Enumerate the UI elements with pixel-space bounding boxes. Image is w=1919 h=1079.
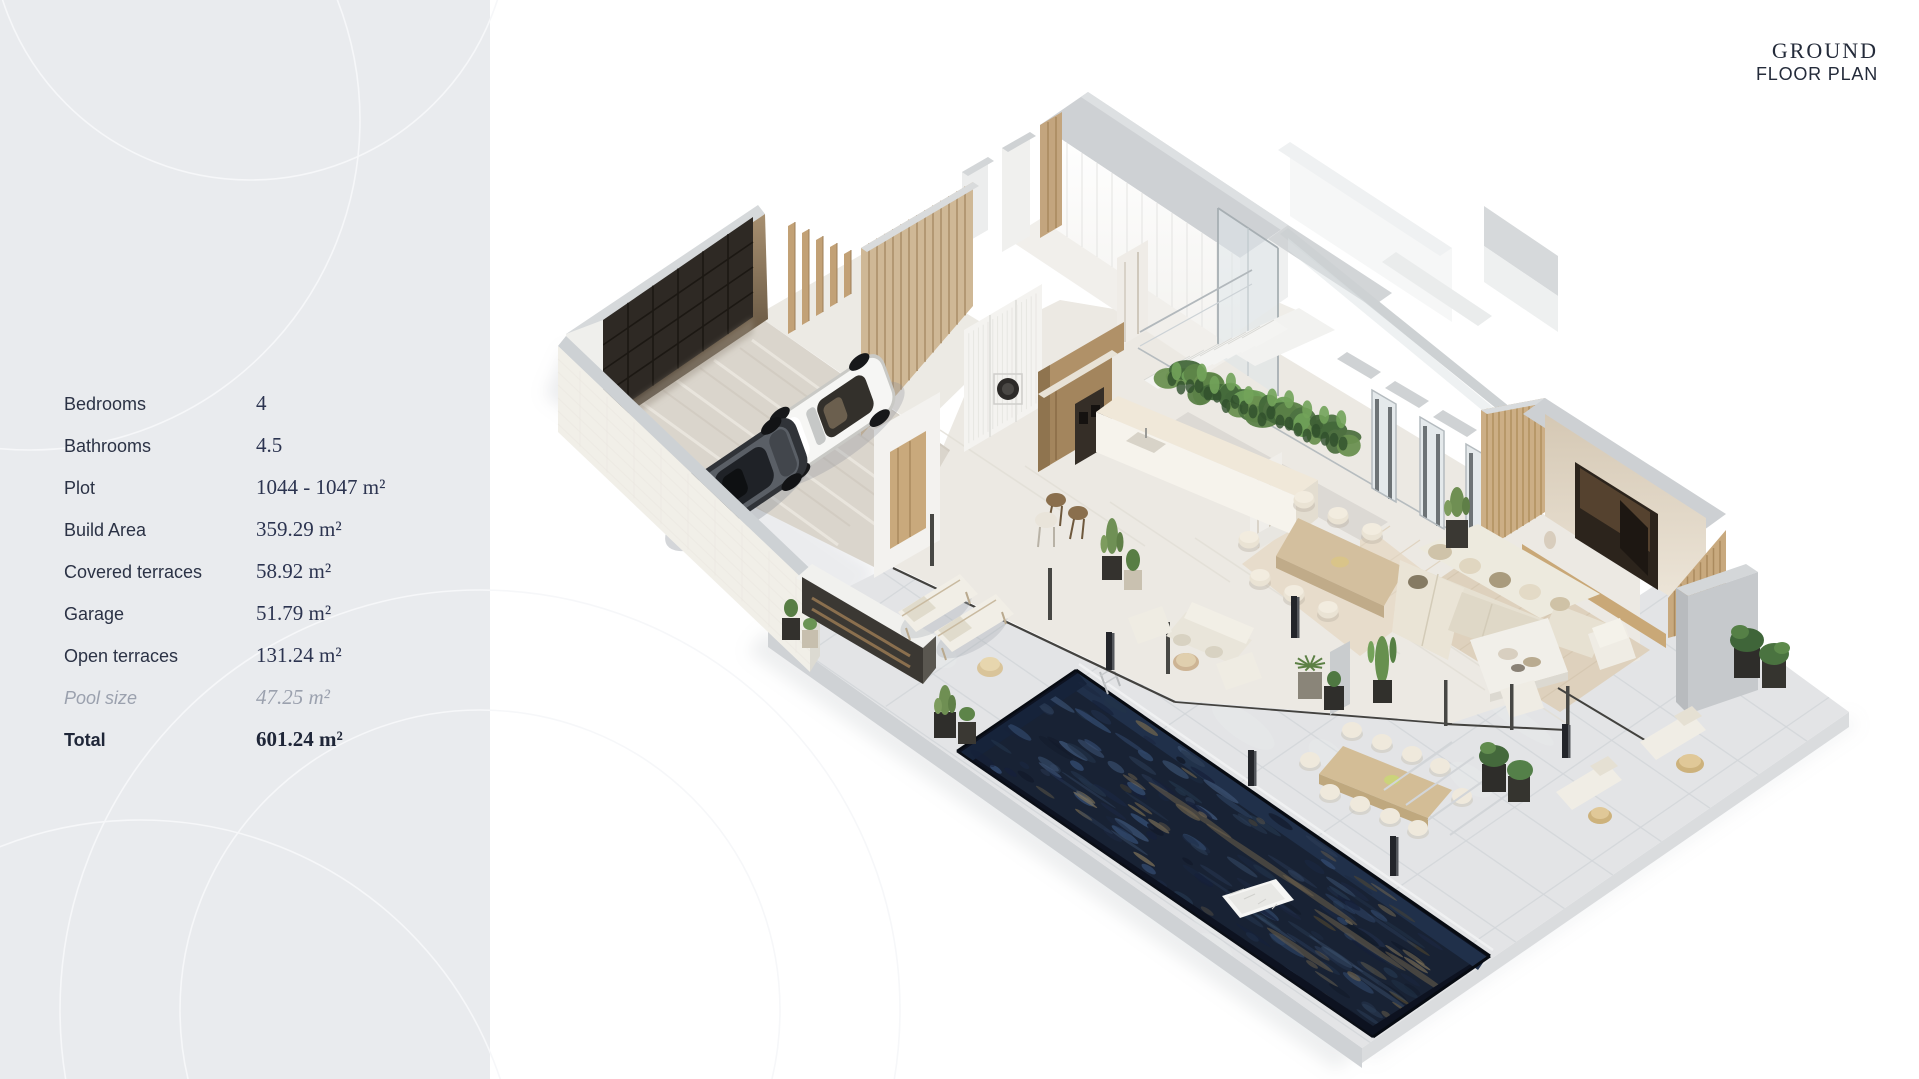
svg-text:4: 4 — [256, 391, 267, 415]
svg-text:601.24 m²: 601.24 m² — [256, 727, 343, 751]
svg-text:Pool size: Pool size — [64, 688, 137, 708]
svg-text:131.24 m²: 131.24 m² — [256, 643, 342, 667]
svg-text:Total: Total — [64, 730, 106, 750]
svg-text:51.79 m²: 51.79 m² — [256, 601, 331, 625]
svg-text:Bedrooms: Bedrooms — [64, 394, 146, 414]
svg-text:FLOOR PLAN: FLOOR PLAN — [1756, 64, 1878, 84]
svg-text:Garage: Garage — [64, 604, 124, 624]
svg-text:47.25 m²: 47.25 m² — [256, 685, 331, 709]
svg-text:Covered terraces: Covered terraces — [64, 562, 202, 582]
svg-text:359.29 m²: 359.29 m² — [256, 517, 342, 541]
svg-text:Build Area: Build Area — [64, 520, 147, 540]
svg-text:GROUND: GROUND — [1772, 38, 1878, 63]
svg-text:1044 - 1047 m²: 1044 - 1047 m² — [256, 475, 385, 499]
svg-text:Open terraces: Open terraces — [64, 646, 178, 666]
svg-text:Plot: Plot — [64, 478, 95, 498]
svg-text:58.92 m²: 58.92 m² — [256, 559, 331, 583]
svg-text:4.5: 4.5 — [256, 433, 282, 457]
svg-text:Bathrooms: Bathrooms — [64, 436, 151, 456]
